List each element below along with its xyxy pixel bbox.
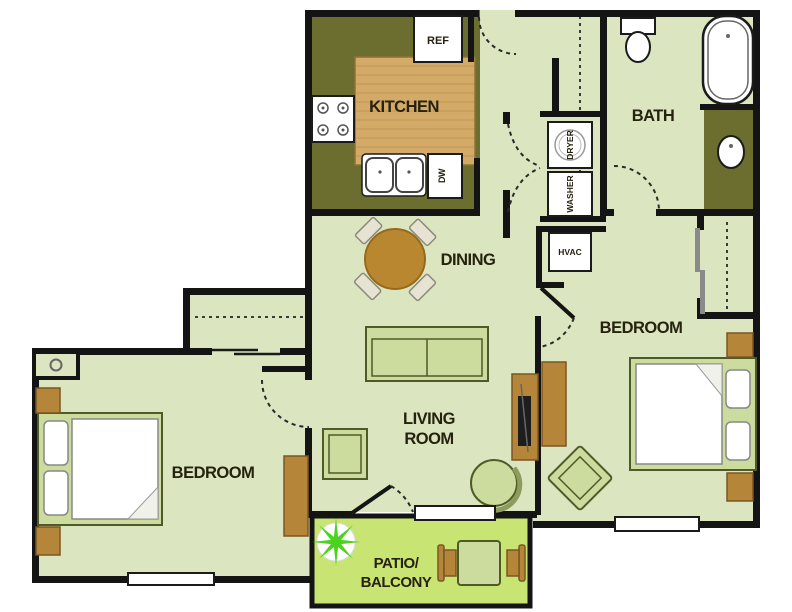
bath-label: BATH bbox=[632, 107, 675, 125]
nightstand bbox=[36, 388, 60, 413]
dining-label: DINING bbox=[441, 251, 496, 269]
dryer-label: DRYER bbox=[565, 130, 575, 159]
bedroom-right-label: BEDROOM bbox=[600, 319, 683, 337]
plant-icon bbox=[312, 518, 360, 566]
bathtub-icon bbox=[703, 16, 753, 104]
kitchen-label: KITCHEN bbox=[369, 98, 439, 116]
dresser-right bbox=[542, 362, 566, 446]
nightstand bbox=[727, 333, 753, 357]
floorplan-canvas: REF DW DRYER WASHER HVAC bbox=[0, 0, 792, 612]
nightstand bbox=[36, 527, 60, 555]
utility-niche bbox=[34, 352, 78, 378]
window-bedroom-left bbox=[128, 573, 214, 585]
living-room-label-line2: ROOM bbox=[404, 430, 453, 448]
tv-console bbox=[512, 374, 538, 460]
patio-label-line1: PATIO/ bbox=[374, 555, 420, 572]
patio-slider-window bbox=[415, 506, 495, 520]
dishwasher: DW bbox=[428, 154, 462, 198]
vanity-sink-icon bbox=[718, 136, 744, 168]
bed-right bbox=[630, 358, 756, 470]
bedroom-left-label: BEDROOM bbox=[172, 464, 255, 482]
kitchen-sink-icon bbox=[362, 154, 426, 196]
dryer: DRYER bbox=[548, 122, 592, 168]
nightstand bbox=[727, 473, 753, 501]
window-bedroom-right bbox=[615, 517, 699, 531]
hvac-closet: HVAC bbox=[549, 233, 591, 271]
hvac-label: HVAC bbox=[558, 247, 581, 257]
sofa bbox=[366, 327, 488, 381]
dining-table bbox=[365, 229, 425, 289]
floorplan-drawing: REF DW DRYER WASHER HVAC bbox=[0, 0, 792, 612]
refrigerator-label: REF bbox=[427, 35, 449, 47]
armchair bbox=[323, 429, 367, 479]
dining-set bbox=[354, 217, 437, 301]
living-room-label-line1: LIVING bbox=[403, 410, 455, 428]
dresser-left bbox=[284, 456, 308, 536]
patio-label-line2: BALCONY bbox=[361, 574, 432, 591]
refrigerator: REF bbox=[414, 16, 462, 62]
bed-left bbox=[38, 413, 162, 525]
washer-label: WASHER bbox=[565, 175, 575, 212]
dishwasher-label: DW bbox=[437, 168, 447, 183]
stove-icon bbox=[312, 96, 354, 142]
washer: WASHER bbox=[548, 172, 592, 216]
